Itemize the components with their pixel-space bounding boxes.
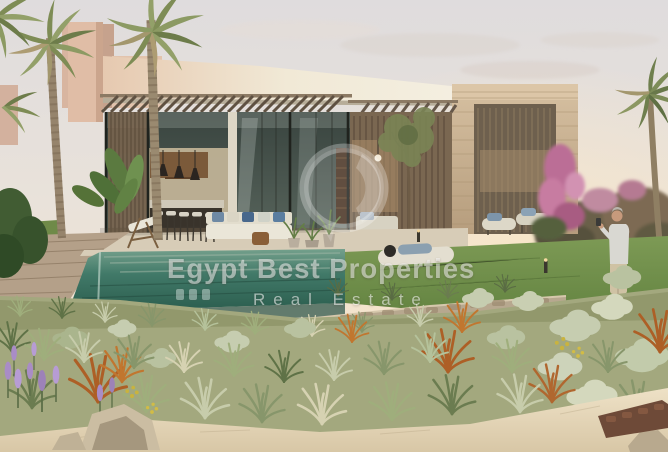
wicker-basket [252,232,269,245]
watermark-glyphs [176,289,210,300]
watermark-glyph [176,289,184,300]
watermark-glyph [189,289,197,300]
watermark-glyph [202,289,210,300]
listing-photo: Egypt Best Properties Real Estate [0,0,668,452]
shirt [609,224,629,264]
rendered-scene [0,0,668,452]
watermark-subtitle: Real Estate [253,291,429,310]
watermark-title: Egypt Best Properties [167,254,475,284]
head [612,211,623,222]
